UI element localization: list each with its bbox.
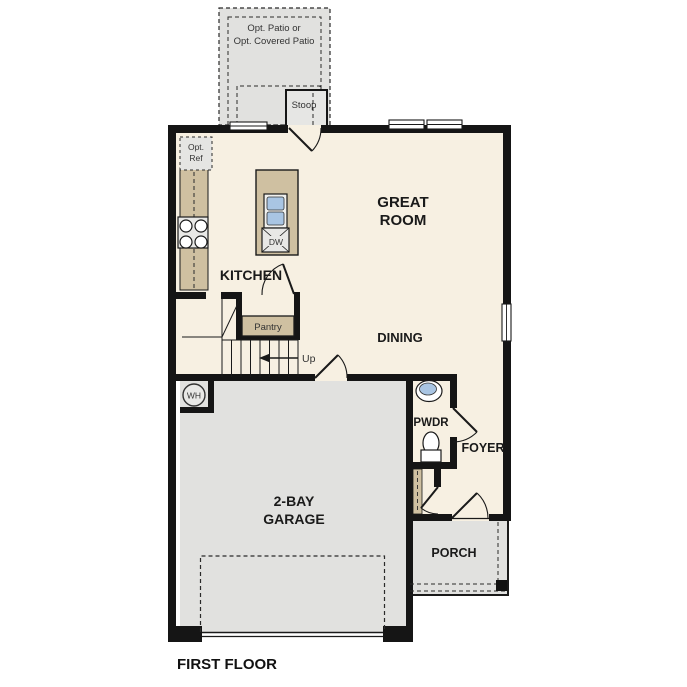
kitchen-island: DW xyxy=(256,170,298,255)
toilet xyxy=(421,432,441,462)
pwdr-sink xyxy=(416,381,442,402)
dining-label: DINING xyxy=(377,330,423,345)
great-room-window-right xyxy=(427,120,462,129)
up-label: Up xyxy=(302,353,316,365)
floor-plan-page: Opt. Patio or Opt. Covered Patio Stoop xyxy=(0,0,687,687)
island-sink xyxy=(264,194,287,228)
porch-right-edge xyxy=(507,521,509,596)
great-room-label-line1: GREAT xyxy=(377,194,428,211)
patio-label-line2: Opt. Covered Patio xyxy=(234,36,315,47)
opt-ref-label-line1: Opt. xyxy=(188,142,204,152)
burner xyxy=(180,236,192,248)
pantry-label: Pantry xyxy=(254,322,282,333)
optional-refrigerator: Opt. Ref xyxy=(180,137,212,170)
dishwasher: DW xyxy=(262,228,289,252)
garage-label-line2: GARAGE xyxy=(263,511,324,527)
opt-ref-label-line2: Ref xyxy=(189,153,203,163)
kitchen-counter xyxy=(178,168,208,290)
dishwasher-label: DW xyxy=(269,237,283,247)
great-room-window-left xyxy=(389,120,424,129)
burner xyxy=(195,220,207,232)
kitchen-label: KITCHEN xyxy=(220,267,282,283)
plan-title: FIRST FLOOR xyxy=(177,656,277,673)
porch-column xyxy=(496,580,507,591)
range-stove xyxy=(178,217,208,248)
patio-label-line1: Opt. Patio or xyxy=(247,23,300,34)
water-heater-label: WH xyxy=(187,391,201,401)
great-room-label-line2: ROOM xyxy=(380,212,427,229)
burner xyxy=(180,220,192,232)
porch-label: PORCH xyxy=(431,546,476,560)
kitchen-window xyxy=(230,122,267,130)
porch-bottom-edge xyxy=(410,594,509,596)
foyer-label: FOYER xyxy=(461,441,504,455)
water-heater: WH xyxy=(183,384,205,406)
burner xyxy=(195,236,207,248)
pwdr-label: PWDR xyxy=(413,417,449,429)
garage-label-line1: 2-BAY xyxy=(274,493,315,509)
first-floor-plan: Opt. Patio or Opt. Covered Patio Stoop xyxy=(0,0,687,687)
dining-side-window xyxy=(502,304,511,341)
stoop-label: Stoop xyxy=(292,100,317,111)
stoop: Stoop xyxy=(286,90,327,130)
